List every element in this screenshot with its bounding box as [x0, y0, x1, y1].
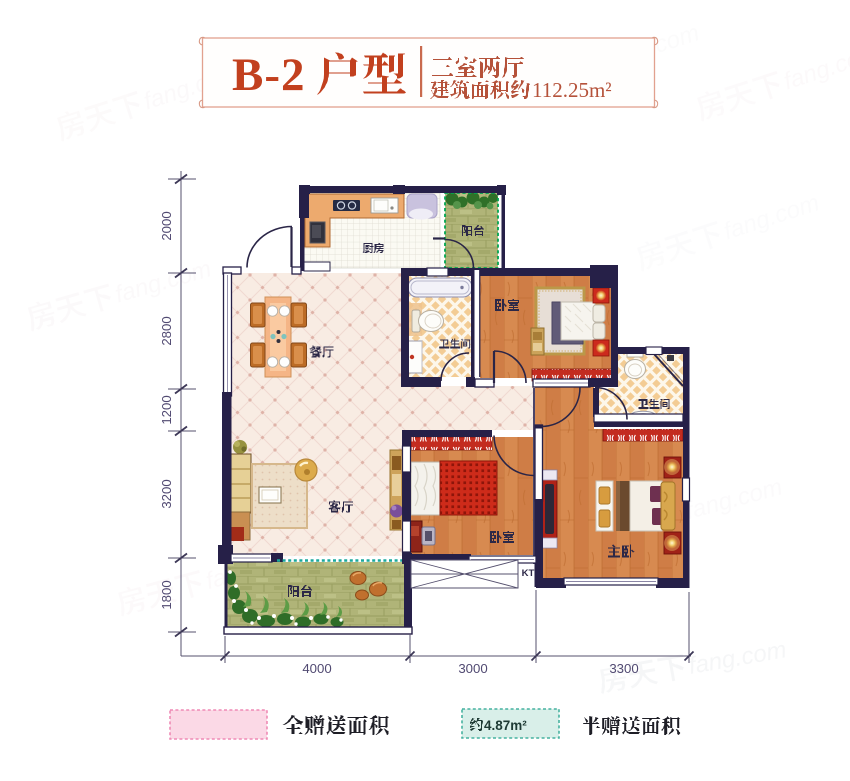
- svg-text:4.87m²: 4.87m²: [484, 718, 527, 733]
- svg-text:3200: 3200: [159, 479, 174, 508]
- svg-text:B-2: B-2: [232, 49, 306, 101]
- svg-text:1800: 1800: [159, 580, 174, 609]
- svg-text:2000: 2000: [159, 211, 174, 240]
- svg-text:2800: 2800: [159, 316, 174, 345]
- svg-text:3300: 3300: [609, 661, 638, 676]
- svg-text:1200: 1200: [159, 395, 174, 424]
- svg-text:4000: 4000: [302, 661, 331, 676]
- svg-text:3000: 3000: [458, 661, 487, 676]
- svg-text:112.25m²: 112.25m²: [532, 78, 612, 102]
- svg-text:KT: KT: [522, 568, 535, 579]
